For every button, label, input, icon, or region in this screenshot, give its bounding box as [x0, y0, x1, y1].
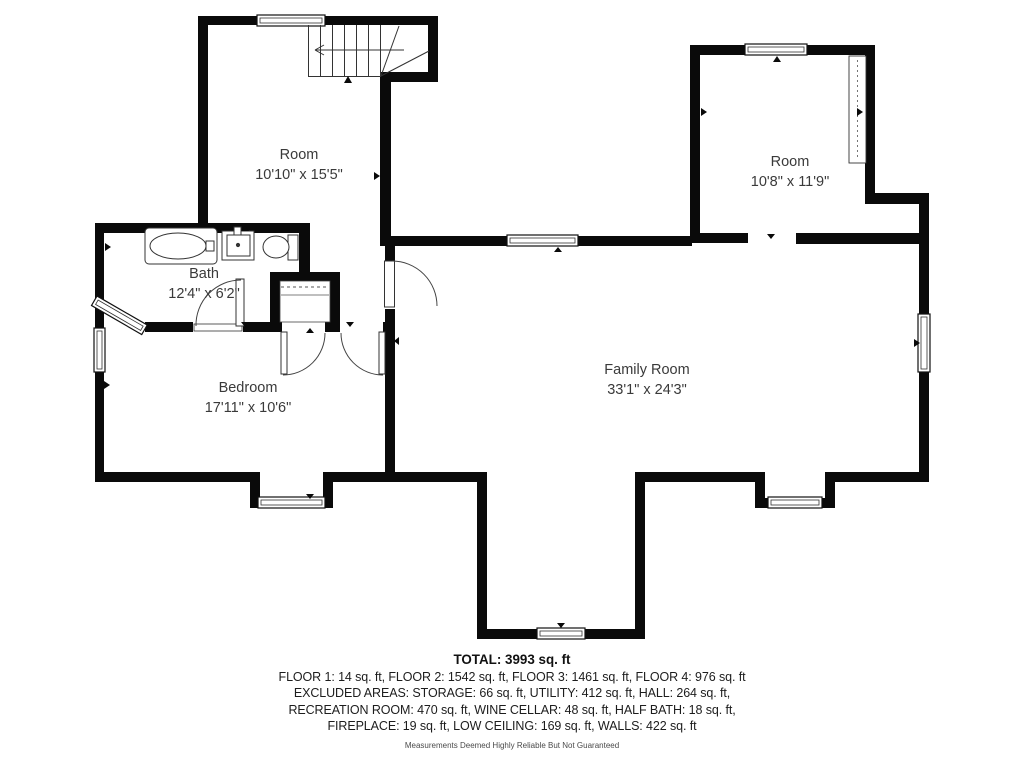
window — [768, 497, 822, 508]
window — [257, 15, 325, 26]
room-name: Bedroom — [205, 378, 292, 398]
sink — [222, 227, 254, 260]
window — [507, 235, 578, 246]
room-label-upper-left: Room 10'10" x 15'5" — [255, 145, 343, 185]
room-label-upper-right: Room 10'8" x 11'9" — [751, 152, 829, 192]
window — [258, 497, 325, 508]
window — [94, 328, 105, 372]
room-label-bedroom: Bedroom 17'11" x 10'6" — [205, 378, 292, 418]
door-bedroom — [341, 332, 385, 375]
floor-plan-page: Room 10'10" x 15'5" Room 10'8" x 11'9" B… — [0, 0, 1024, 768]
room-dimensions: 33'1" x 24'3" — [604, 380, 689, 400]
room-dimensions: 10'8" x 11'9" — [751, 172, 829, 192]
excluded-areas-line: RECREATION ROOM: 470 sq. ft, WINE CELLAR… — [0, 702, 1024, 719]
door-family-room — [385, 261, 438, 307]
excluded-areas-line: FIREPLACE: 19 sq. ft, LOW CEILING: 169 s… — [0, 718, 1024, 735]
floor-areas-line: FLOOR 1: 14 sq. ft, FLOOR 2: 1542 sq. ft… — [0, 669, 1024, 686]
disclaimer-text: Measurements Deemed Highly Reliable But … — [0, 741, 1024, 750]
room-label-family-room: Family Room 33'1" x 24'3" — [604, 360, 689, 400]
closet — [280, 281, 330, 322]
excluded-areas-line: EXCLUDED AREAS: STORAGE: 66 sq. ft, UTIL… — [0, 685, 1024, 702]
room-dimensions: 17'11" x 10'6" — [205, 398, 292, 418]
area-summary: TOTAL: 3993 sq. ft FLOOR 1: 14 sq. ft, F… — [0, 652, 1024, 750]
total-area: TOTAL: 3993 sq. ft — [0, 652, 1024, 669]
room-name: Room — [255, 145, 343, 165]
room-dimensions: 10'10" x 15'5" — [255, 165, 343, 185]
toilet — [263, 235, 298, 260]
dimension-markers — [104, 56, 920, 628]
room-dimensions: 12'4" x 6'2" — [168, 284, 239, 304]
room-name: Room — [751, 152, 829, 172]
bathtub — [145, 228, 217, 264]
room-label-bath: Bath 12'4" x 6'2" — [168, 264, 239, 304]
window — [537, 628, 585, 639]
room-name: Family Room — [604, 360, 689, 380]
room-name: Bath — [168, 264, 239, 284]
window — [745, 44, 807, 55]
door-closet — [281, 332, 325, 375]
